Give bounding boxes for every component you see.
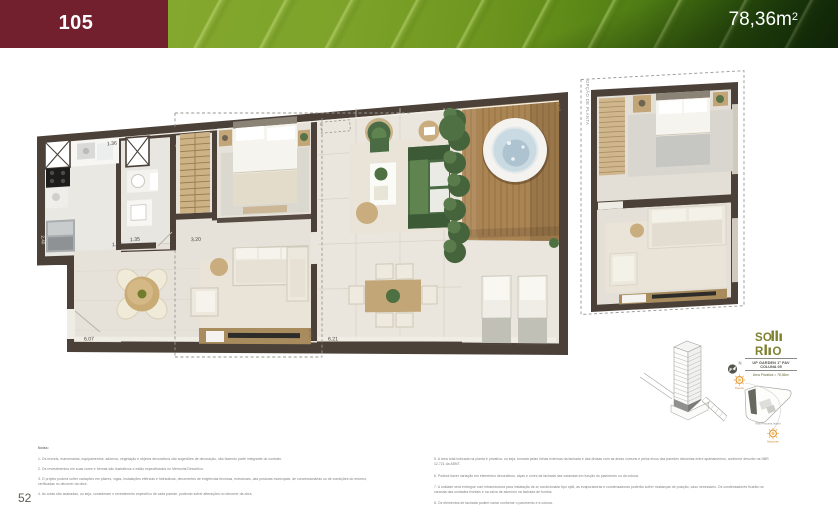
svg-text:6.07: 6.07 — [84, 336, 94, 342]
svg-text:O: O — [773, 346, 782, 358]
svg-text:3.20: 3.20 — [191, 237, 202, 244]
svg-text:OPÇÃO DE PLANTA: OPÇÃO DE PLANTA — [585, 80, 590, 125]
svg-text:Nascente: Nascente — [767, 439, 779, 443]
svg-text:6.27: 6.27 — [556, 102, 562, 111]
svg-text:R: R — [755, 346, 764, 358]
svg-text:6.21: 6.21 — [328, 336, 338, 342]
svg-text:1.36: 1.36 — [107, 141, 118, 148]
svg-text:1.96: 1.96 — [112, 242, 123, 249]
svg-text:N: N — [739, 361, 742, 366]
svg-text:1.35: 1.35 — [130, 237, 141, 244]
svg-text:5.70: 5.70 — [308, 328, 314, 337]
svg-text:2.40: 2.40 — [40, 235, 46, 245]
svg-text:SO: SO — [755, 332, 772, 344]
svg-text:Poente: Poente — [735, 386, 744, 390]
svg-text:2.81: 2.81 — [175, 144, 181, 154]
svg-text:Rua Princesa Isabel: Rua Princesa Isabel — [755, 422, 780, 426]
